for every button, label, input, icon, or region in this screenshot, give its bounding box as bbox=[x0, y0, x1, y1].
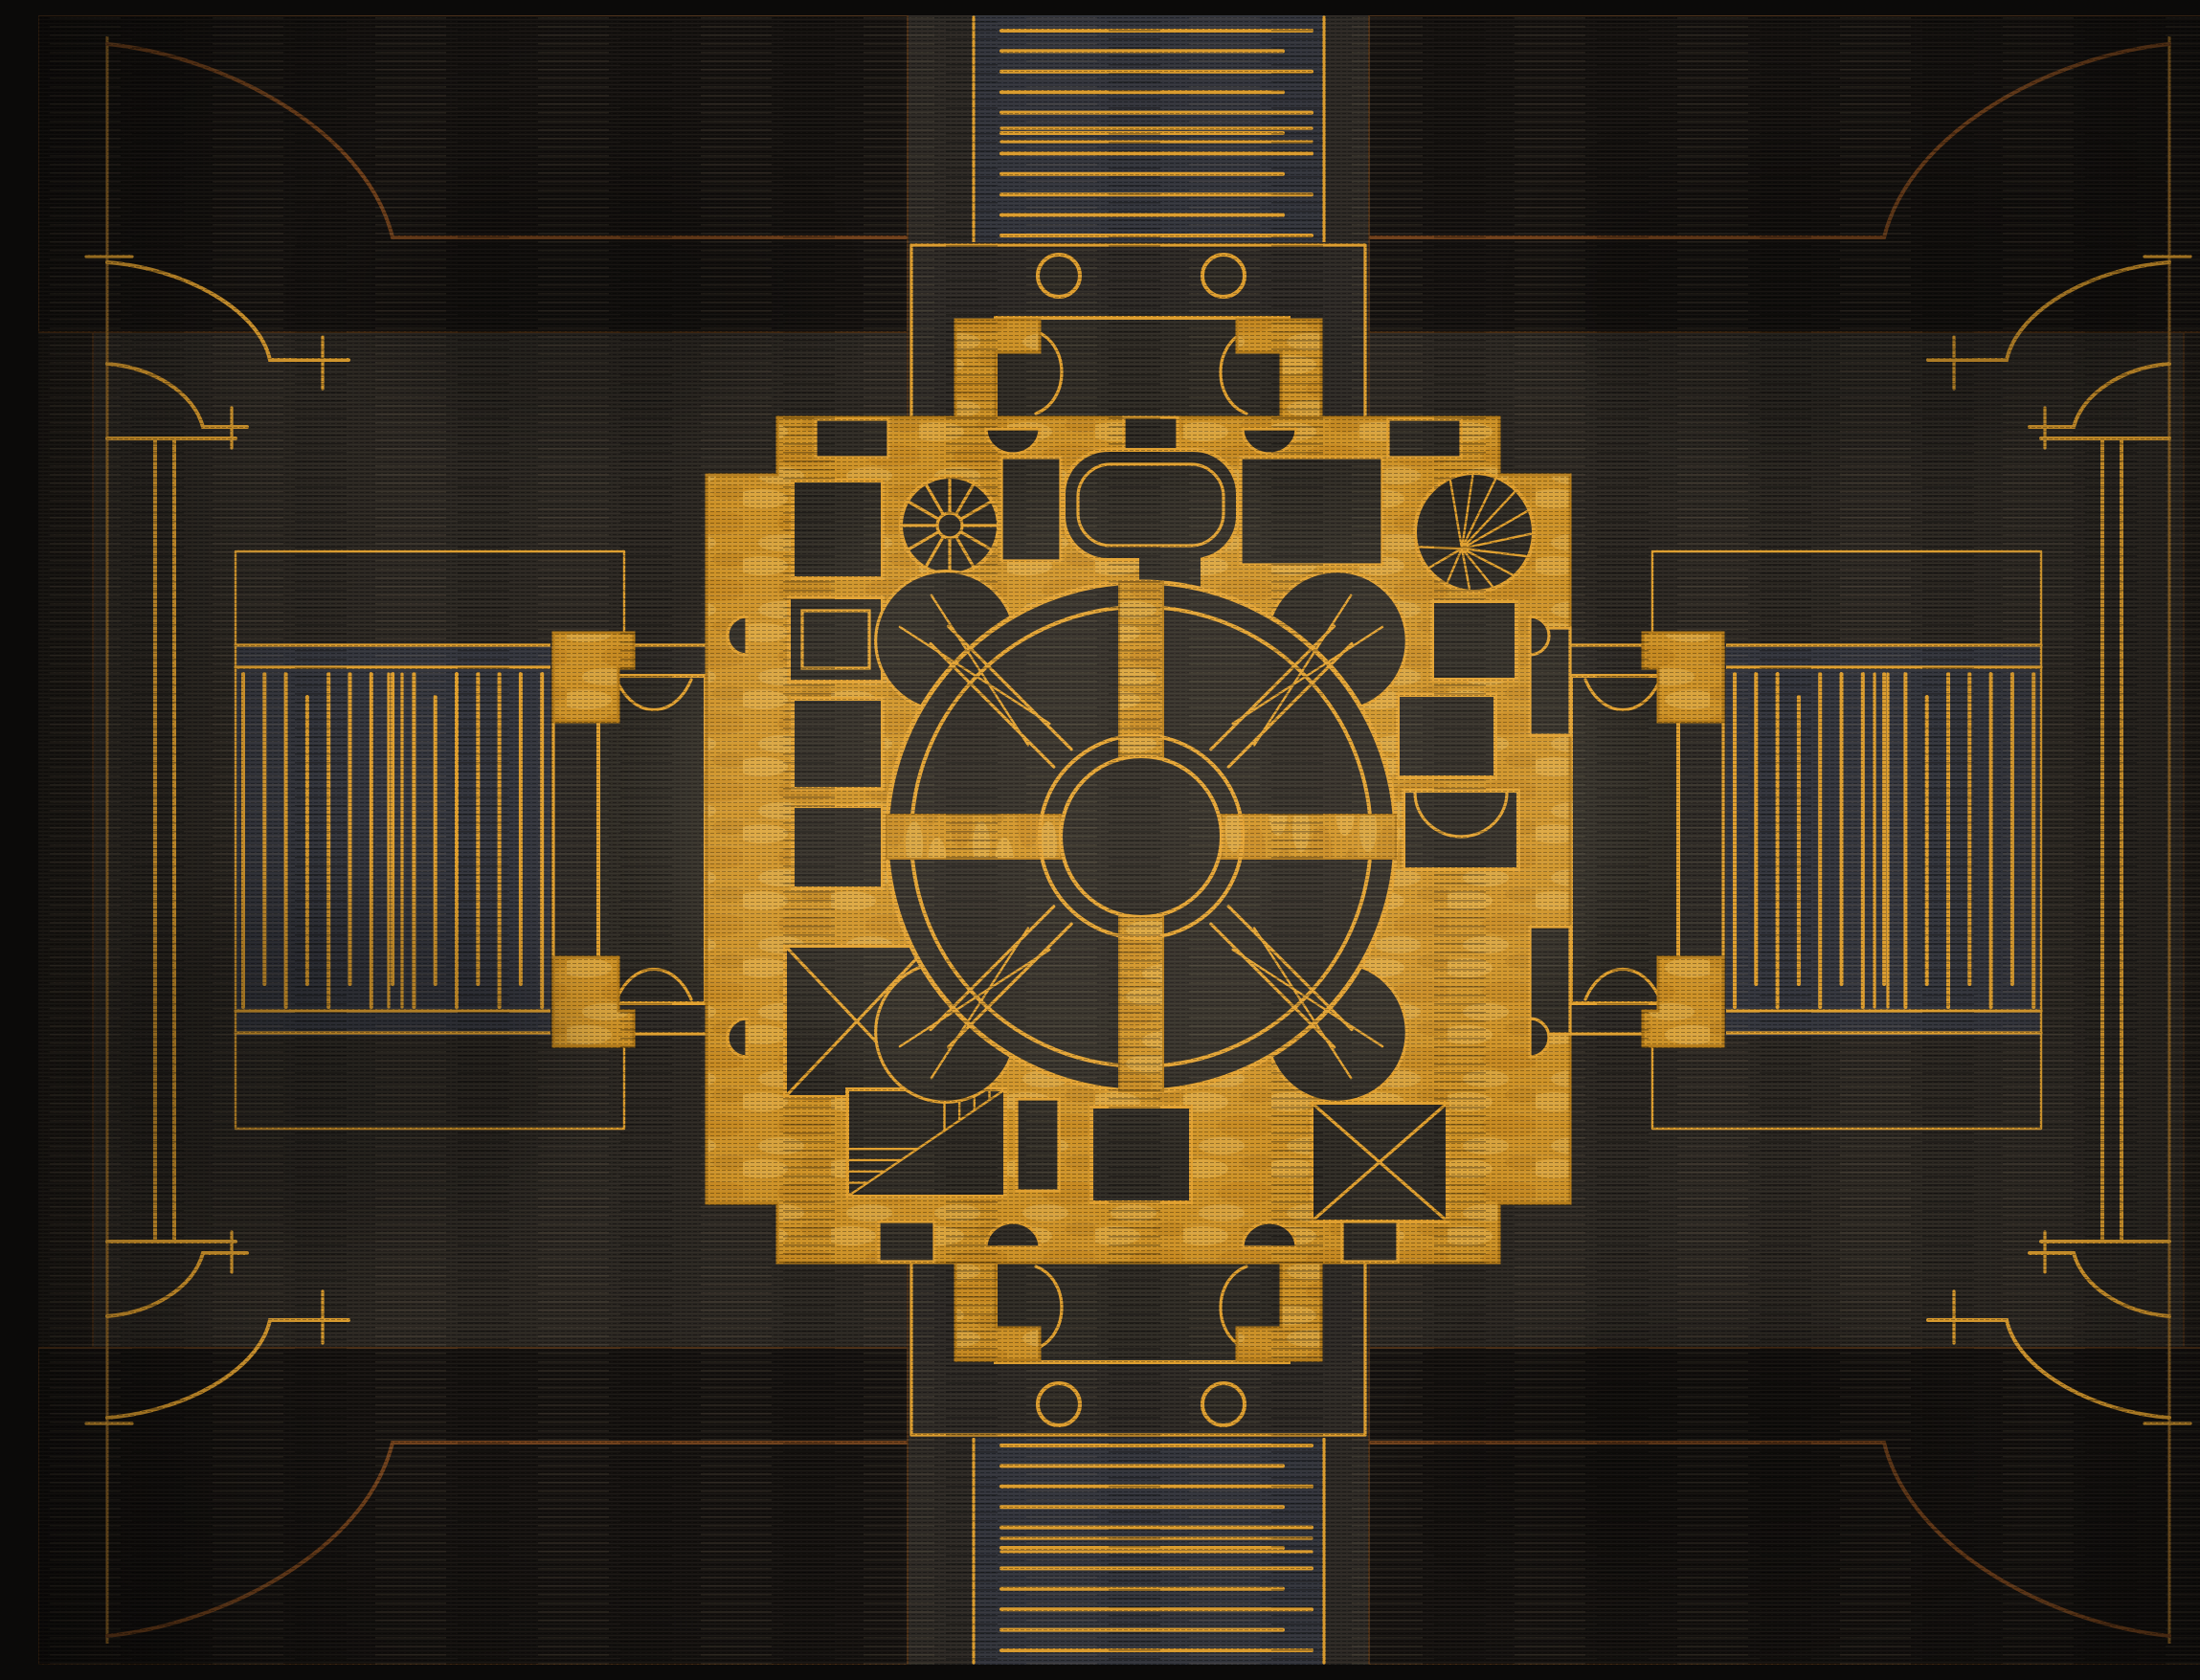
weave-texture-overlay bbox=[38, 15, 2200, 1665]
floor-plan-rug-art bbox=[38, 15, 2200, 1665]
rug-photo: Hand-knotted charcoal rug woven with a g… bbox=[38, 15, 2200, 1665]
